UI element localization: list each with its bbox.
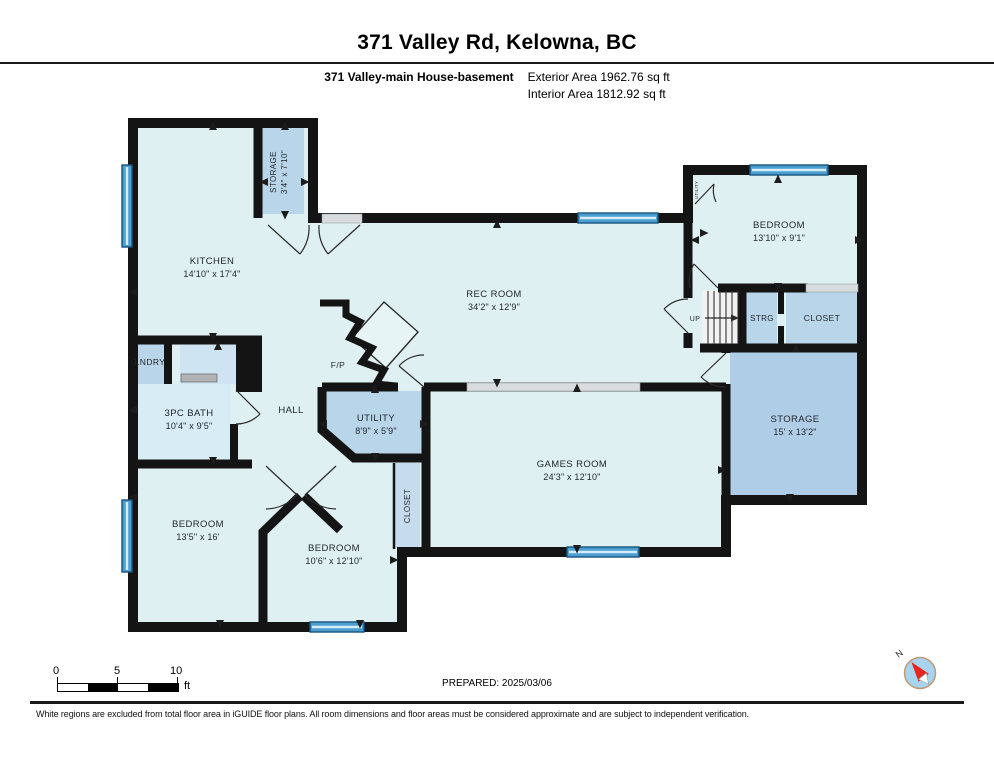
room-label-rec-room: REC ROOM [466, 289, 521, 300]
footer-divider [30, 701, 964, 704]
room-label-storage-big: STORAGE [770, 414, 819, 425]
room-dims-storage-big: 15' x 13'2" [773, 427, 816, 437]
room-label-up: UP [690, 316, 701, 323]
room-label-bedroom-bm: BEDROOM [308, 543, 360, 554]
window-icon [750, 165, 828, 175]
room-dims-games-room: 24'3" x 12'10" [543, 472, 600, 482]
room-dims-kitchen: 14'10" x 17'4" [183, 269, 240, 279]
window-icon [310, 622, 364, 632]
room-label-laundry: LNDRY [135, 357, 166, 367]
room-label-storage-small: STORAGE [269, 151, 278, 193]
room-label-closet-b: CLOSET [403, 489, 412, 523]
window-icon [122, 500, 132, 572]
floor-plan: KITCHEN 14'10" x 17'4" STORAGE 3'4" x 7'… [0, 0, 994, 768]
room-dims-bedroom-bm: 10'6" x 12'10" [305, 556, 362, 566]
room-label-games-room: GAMES ROOM [537, 459, 608, 470]
room-label-fireplace: F/P [331, 360, 345, 370]
disclaimer-text: White regions are excluded from total fl… [36, 709, 749, 719]
room-label-utility: UTILITY [357, 413, 395, 424]
room-label-closet-tr: CLOSET [804, 313, 840, 323]
room-label-kitchen: KITCHEN [190, 256, 235, 267]
room-dims-rec-room: 34'2" x 12'9" [468, 302, 520, 312]
room-label-bath: 3PC BATH [165, 408, 214, 419]
scale-tick-10: 10 [170, 665, 182, 677]
room-label-bedroom-bl: BEDROOM [172, 519, 224, 530]
floor-plan-page: 371 Valley Rd, Kelowna, BC 371 Valley-ma… [0, 0, 994, 768]
room-dims-utility: 8'9" x 5'9" [355, 426, 397, 436]
room-dims-bedroom-bl: 13'5" x 16' [176, 532, 219, 542]
room-label-hall: HALL [278, 405, 303, 416]
room-label-utility-small: UTILITY [694, 181, 699, 199]
room-dims-storage-small: 3'4" x 7'10" [280, 150, 289, 194]
room-dims-bedroom-tr: 13'10" x 9'1" [753, 233, 805, 243]
window-icon [122, 165, 132, 247]
scale-tick-5: 5 [114, 665, 120, 677]
bath-counter [181, 374, 217, 382]
window-icon [578, 213, 658, 223]
room-dims-bath: 10'4" x 9'5" [166, 421, 213, 431]
prepared-date: PREPARED: 2025/03/06 [0, 678, 994, 689]
scale-tick-0: 0 [53, 665, 59, 677]
compass-north-label: N [894, 648, 905, 660]
room-label-strg: STRG [750, 314, 774, 323]
room-label-bedroom-tr: BEDROOM [753, 220, 805, 231]
wall-chunk [236, 338, 262, 392]
